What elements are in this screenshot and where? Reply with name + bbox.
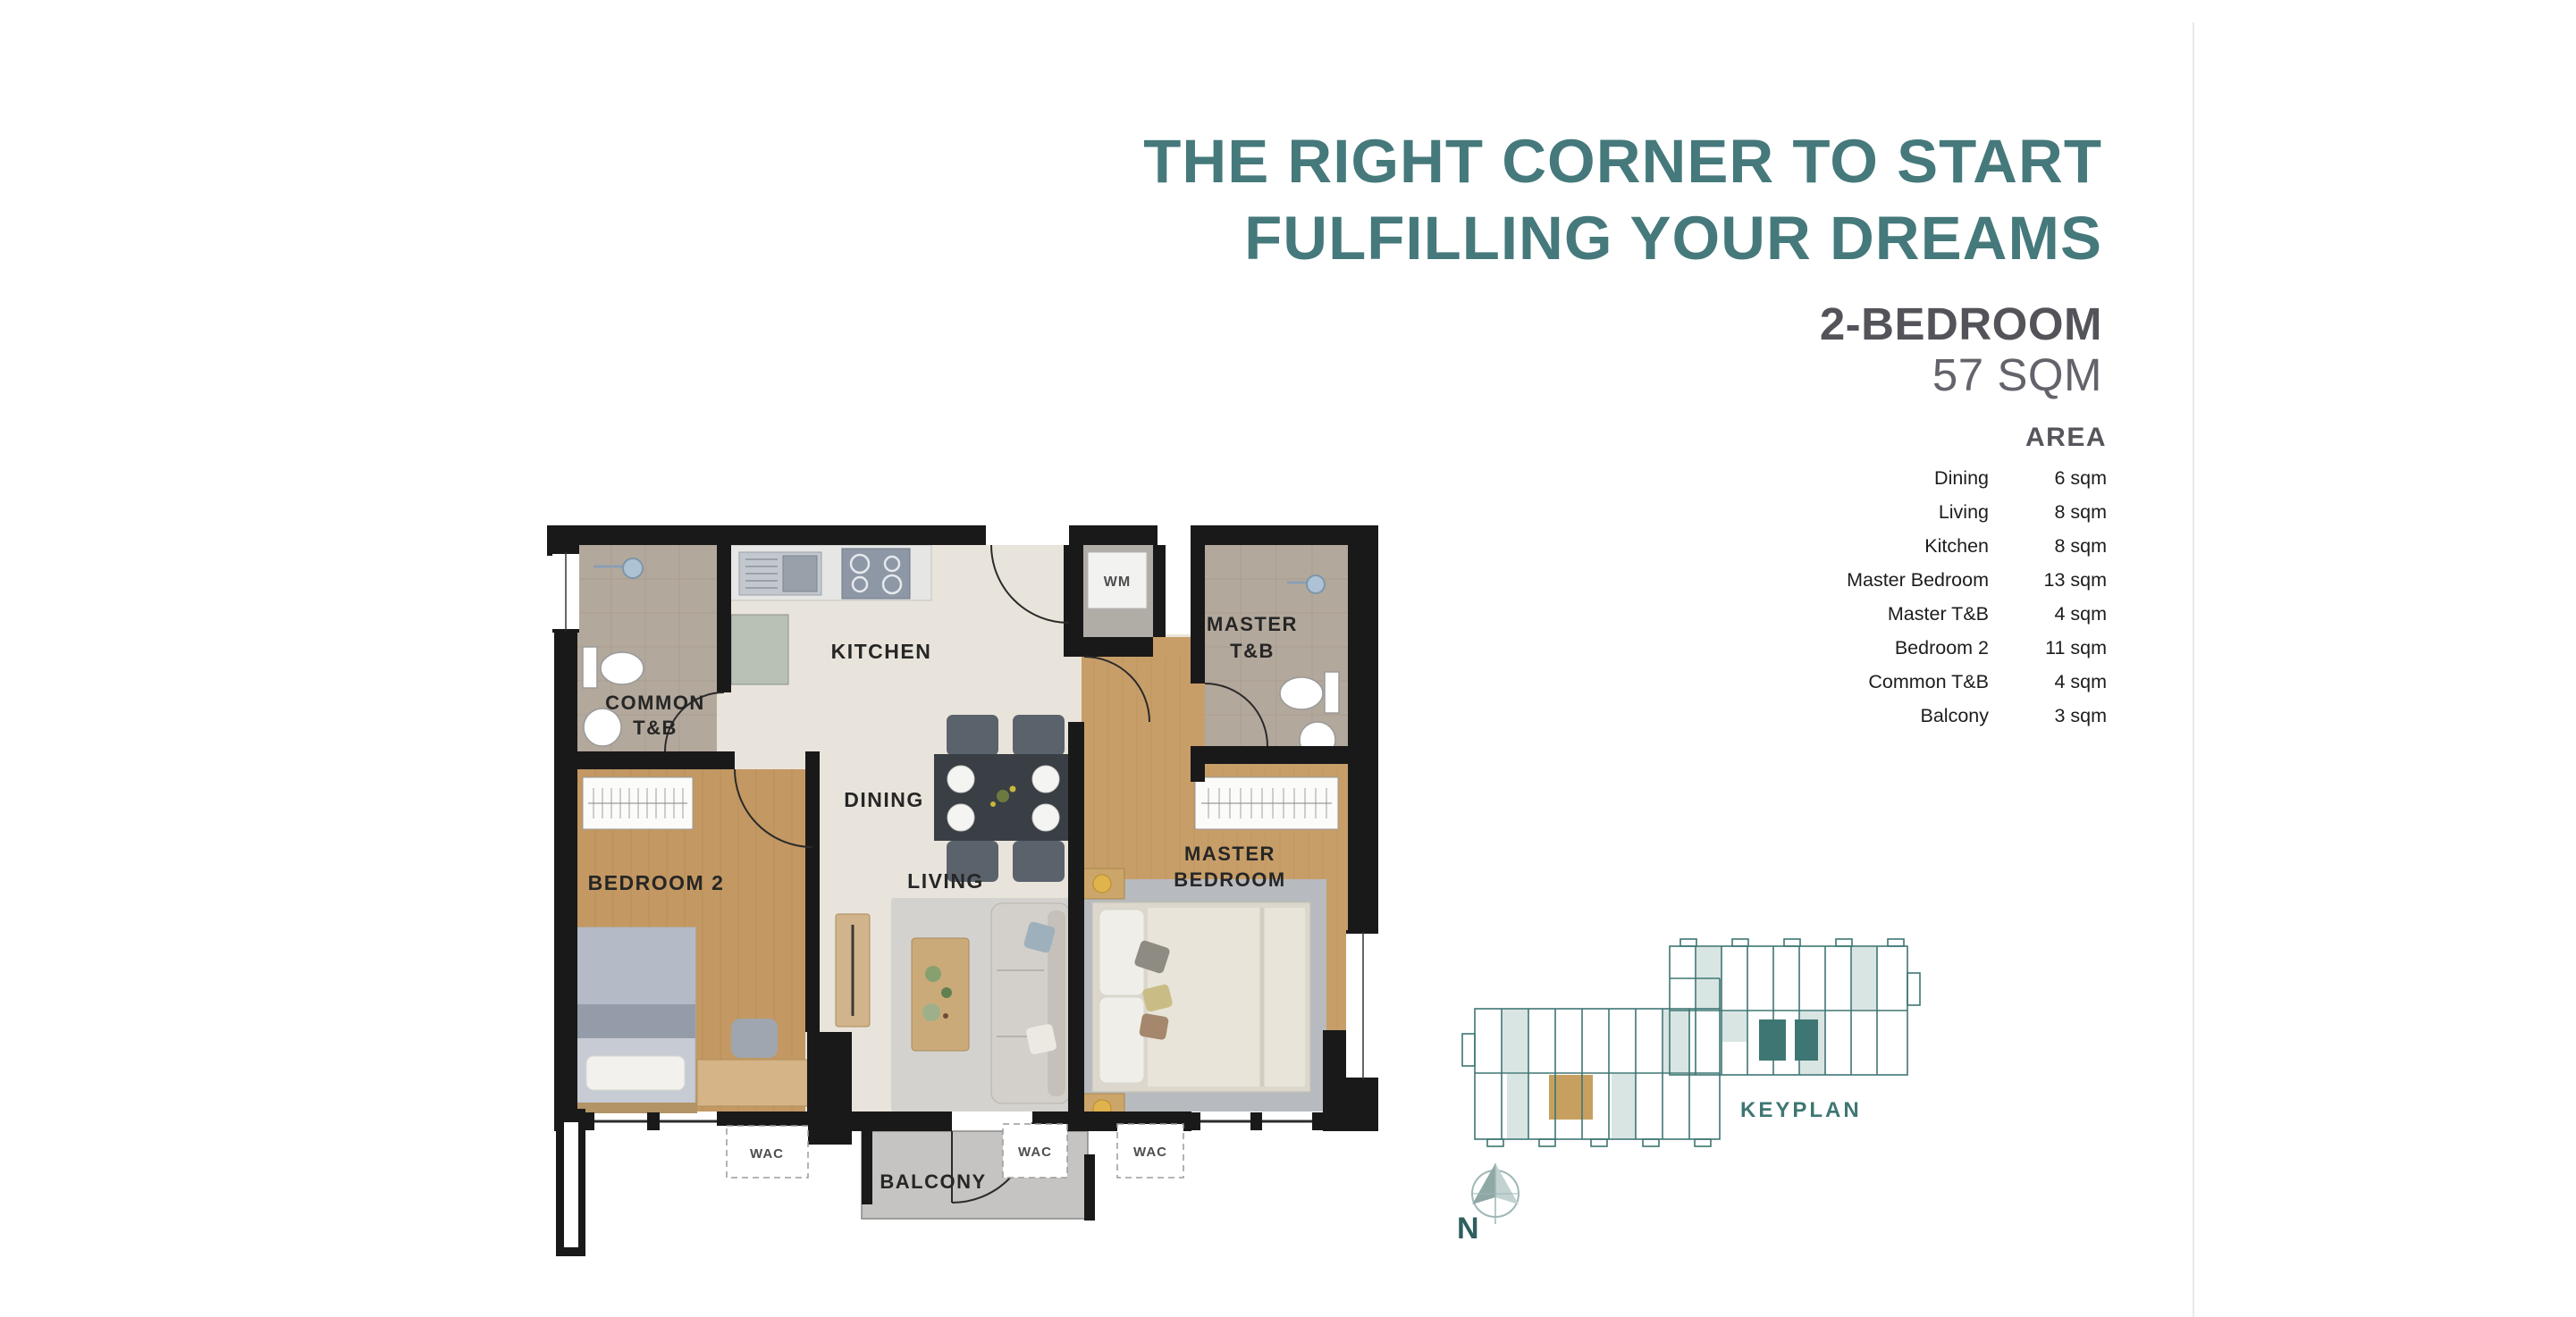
master-br-label-1: MASTER [1184, 843, 1275, 865]
area-row-label: Common T&B [1868, 671, 1989, 693]
area-row: Master Bedroom13 sqm [1847, 569, 2107, 603]
dining-label: DINING [844, 788, 924, 811]
area-row-value: 6 sqm [1989, 467, 2107, 490]
area-row: Dining6 sqm [1847, 467, 2107, 501]
common-tb-label-1: COMMON [605, 692, 705, 714]
keyplan: KEYPLAN N [1448, 934, 2109, 1246]
area-row-label: Balcony [1921, 705, 1990, 727]
area-row-label: Kitchen [1924, 535, 1989, 558]
area-row: Master T&B4 sqm [1847, 603, 2107, 637]
vertical-divider [2193, 22, 2194, 1317]
area-row-value: 8 sqm [1989, 535, 2107, 558]
area-row-label: Master T&B [1888, 603, 1989, 625]
bedroom2-label: BEDROOM 2 [588, 871, 725, 894]
area-row-label: Living [1939, 501, 1989, 524]
balcony-label: BALCONY [880, 1170, 986, 1193]
area-row-value: 13 sqm [1989, 569, 2107, 591]
north-compass: N [1457, 1163, 1519, 1246]
area-row: Living8 sqm [1847, 501, 2107, 535]
title-line-1: THE RIGHT CORNER TO START [1143, 123, 2102, 200]
area-row-value: 3 sqm [1989, 705, 2107, 727]
area-row-value: 11 sqm [1989, 637, 2107, 659]
keyplan-drawing: KEYPLAN N [1448, 934, 2109, 1246]
page-title: THE RIGHT CORNER TO START FULFILLING YOU… [1143, 123, 2102, 277]
master-tb-label-2: T&B [1230, 640, 1275, 662]
page: THE RIGHT CORNER TO START FULFILLING YOU… [0, 0, 2576, 1317]
title-line-2: FULFILLING YOUR DREAMS [1143, 200, 2102, 277]
washing-machine-closet: WM [1088, 552, 1147, 608]
common-tb-label-2: T&B [633, 717, 678, 739]
area-row-value: 8 sqm [1989, 501, 2107, 524]
master-tb-label-1: MASTER [1207, 613, 1298, 635]
area-row-label: Master Bedroom [1847, 569, 1989, 591]
living-label: LIVING [907, 869, 984, 893]
area-row-label: Bedroom 2 [1895, 637, 1989, 659]
unit-subtitle: 2-BEDROOM 57 SQM [1820, 298, 2102, 400]
floor-plan-drawing: WM [547, 525, 1378, 1260]
area-row: Balcony3 sqm [1847, 705, 2107, 739]
area-heading: AREA [1847, 423, 2107, 453]
niche [1166, 545, 1191, 634]
wac-label: WAC [1018, 1145, 1052, 1160]
unit-size: 57 SQM [1820, 349, 2102, 400]
north-label: N [1457, 1212, 1479, 1246]
master-wardrobe [1195, 777, 1338, 829]
area-row: Kitchen8 sqm [1847, 535, 2107, 569]
area-row-label: Dining [1934, 467, 1989, 490]
area-row: Bedroom 211 sqm [1847, 637, 2107, 671]
kitchen-label: KITCHEN [831, 640, 932, 663]
wac-label: WAC [1133, 1145, 1167, 1160]
keyplan-cores [1759, 1019, 1818, 1061]
master-bed [1080, 868, 1326, 1124]
area-row-value: 4 sqm [1989, 603, 2107, 625]
keyplan-label: KEYPLAN [1740, 1098, 1862, 1122]
bedroom2-closet [583, 777, 693, 829]
wac-label: WAC [750, 1146, 784, 1162]
floor-plan: WM [547, 525, 1378, 1260]
area-row-value: 4 sqm [1989, 671, 2107, 693]
area-table: AREA Dining6 sqm Living8 sqm Kitchen8 sq… [1847, 423, 2107, 739]
unit-type: 2-BEDROOM [1820, 298, 2102, 349]
area-row: Common T&B4 sqm [1847, 671, 2107, 705]
wm-label: WM [1104, 575, 1131, 590]
master-br-label-2: BEDROOM [1174, 868, 1285, 891]
